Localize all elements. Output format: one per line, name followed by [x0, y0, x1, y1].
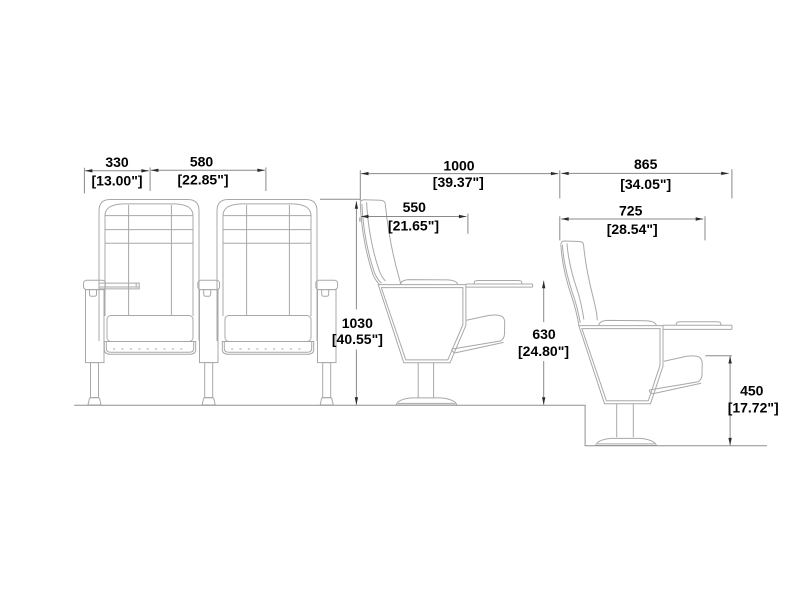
svg-text:[13.00"]: [13.00"] — [92, 173, 143, 189]
svg-text:550: 550 — [403, 199, 427, 215]
svg-text:865: 865 — [634, 156, 658, 172]
svg-text:[40.55"]: [40.55"] — [332, 331, 383, 347]
svg-text:[21.65"]: [21.65"] — [388, 217, 439, 233]
svg-text:450: 450 — [740, 383, 764, 399]
svg-text:330: 330 — [105, 154, 129, 170]
svg-text:[17.72"]: [17.72"] — [728, 400, 779, 416]
svg-text:630: 630 — [532, 326, 556, 342]
svg-text:725: 725 — [619, 203, 643, 219]
svg-text:580: 580 — [190, 153, 214, 169]
svg-text:1000: 1000 — [443, 158, 474, 174]
svg-text:[34.05"]: [34.05"] — [620, 176, 671, 192]
svg-text:[39.37"]: [39.37"] — [433, 174, 484, 190]
svg-text:[28.54"]: [28.54"] — [607, 221, 658, 237]
svg-text:1030: 1030 — [342, 315, 373, 331]
svg-text:[24.80"]: [24.80"] — [518, 343, 569, 359]
svg-text:[22.85"]: [22.85"] — [178, 172, 229, 188]
